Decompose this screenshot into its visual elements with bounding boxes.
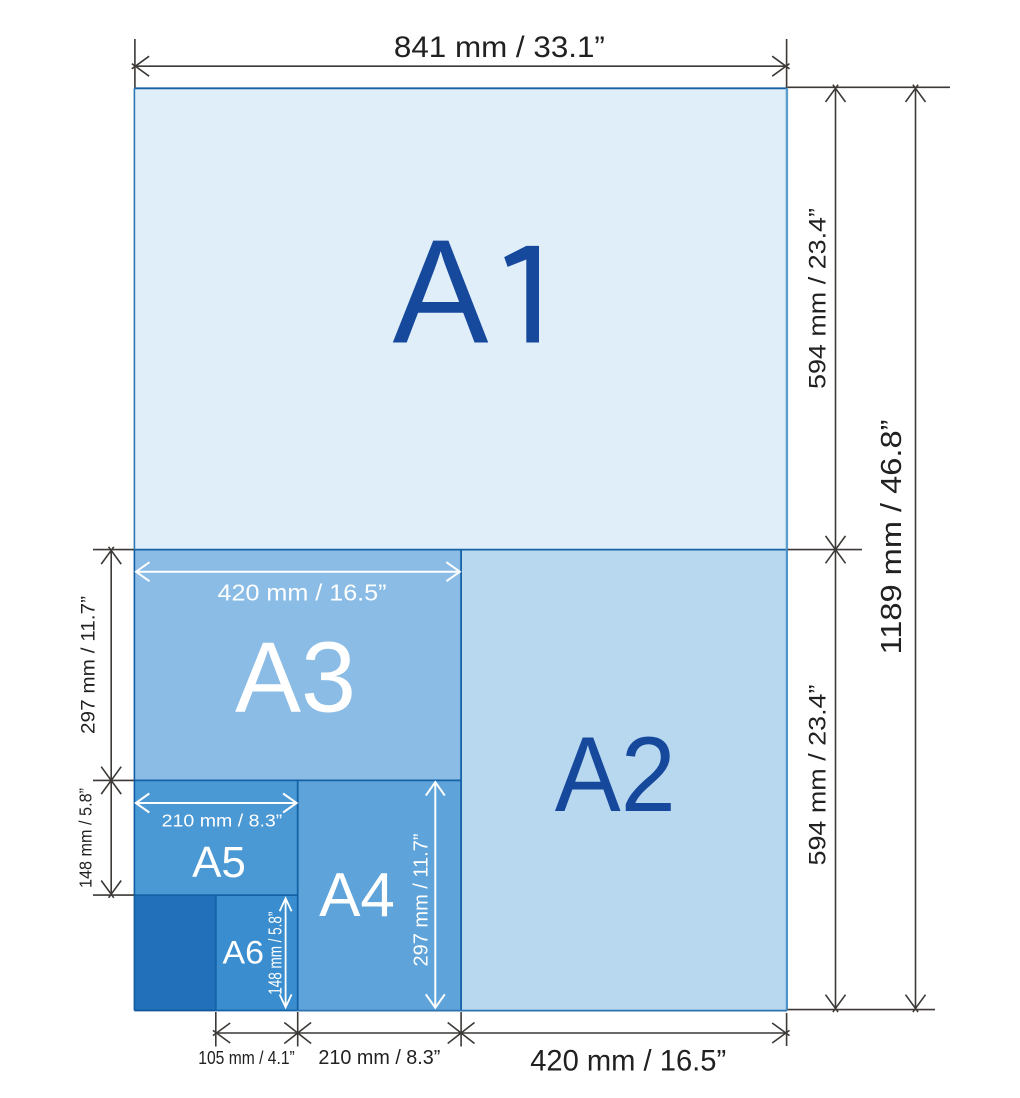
svg-text:420 mm / 16.5”: 420 mm / 16.5”: [530, 1044, 726, 1077]
svg-text:841 mm / 33.1”: 841 mm / 33.1”: [394, 31, 605, 64]
svg-text:A3: A3: [235, 622, 356, 734]
svg-text:297 mm / 11.7”: 297 mm / 11.7”: [79, 596, 100, 734]
svg-text:594 mm / 23.4”: 594 mm / 23.4”: [804, 208, 831, 389]
svg-text:148 mm / 5.8”: 148 mm / 5.8”: [266, 912, 286, 995]
svg-text:594 mm / 23.4”: 594 mm / 23.4”: [804, 684, 831, 865]
svg-text:A4: A4: [319, 861, 395, 930]
svg-text:210 mm / 8.3”: 210 mm / 8.3”: [318, 1047, 440, 1069]
svg-text:A6: A6: [223, 935, 265, 971]
svg-text:1189 mm / 46.8”: 1189 mm / 46.8”: [876, 420, 908, 655]
svg-text:105 mm / 4.1”: 105 mm / 4.1”: [198, 1048, 295, 1068]
svg-text:297 mm / 11.7”: 297 mm / 11.7”: [410, 833, 433, 966]
svg-text:A: A: [393, 210, 489, 375]
svg-text:420 mm / 16.5”: 420 mm / 16.5”: [218, 580, 387, 606]
svg-text:A2: A2: [555, 714, 676, 834]
svg-text:A5: A5: [192, 838, 246, 887]
svg-text:148 mm / 5.8”: 148 mm / 5.8”: [76, 788, 96, 888]
svg-text:210 mm / 8.3”: 210 mm / 8.3”: [162, 811, 283, 831]
